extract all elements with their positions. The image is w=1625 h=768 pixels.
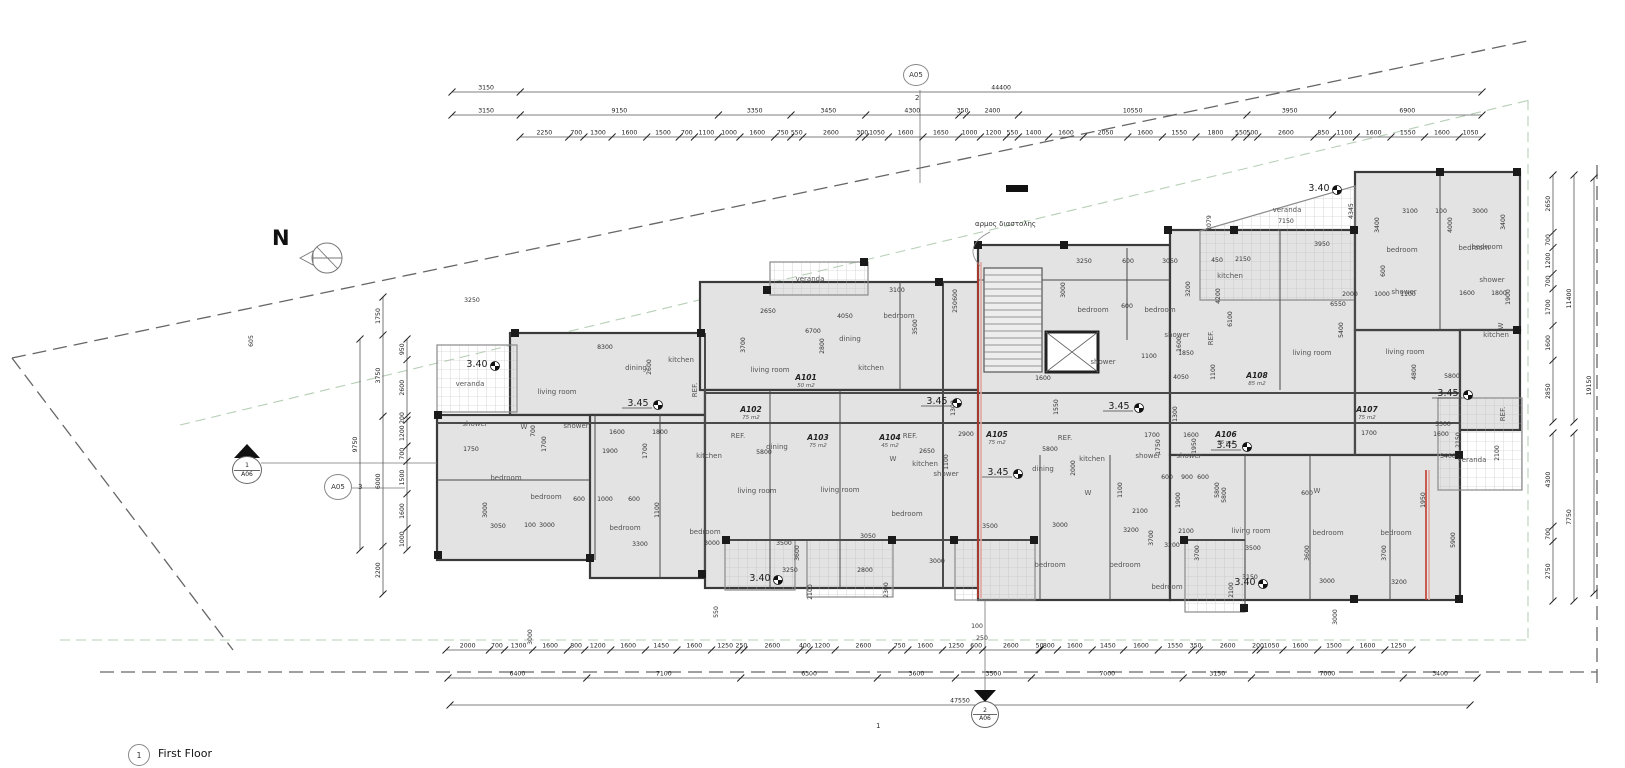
dimension-text: 1250 bbox=[948, 643, 964, 650]
dimension-text: 4800 bbox=[1411, 364, 1418, 380]
dimension-text: 3450 bbox=[820, 108, 836, 115]
column bbox=[1513, 326, 1521, 334]
level-label: 3.45 bbox=[627, 398, 648, 409]
apartment-area: 50 m2 bbox=[797, 383, 815, 389]
room-label: bedroom bbox=[1109, 561, 1140, 569]
section-marker-label: A06 bbox=[234, 471, 260, 479]
level-label: 3.45 bbox=[1108, 401, 1129, 412]
view-number-bubble: 1 bbox=[128, 744, 150, 766]
dimension-text: 19150 bbox=[1586, 376, 1593, 396]
dimension-text: 1700 bbox=[642, 443, 649, 459]
room-label: veranda bbox=[1273, 206, 1302, 214]
dimension-text: 1600 bbox=[1433, 431, 1449, 438]
dimension-text: 1900 bbox=[1175, 492, 1182, 508]
dimension-text: 1000 bbox=[962, 130, 978, 137]
dimension-text: 4300 bbox=[1545, 472, 1552, 488]
apartment-id: A105 bbox=[985, 430, 1007, 439]
dimension-text: 3200 bbox=[1391, 579, 1407, 586]
stairs bbox=[984, 268, 1042, 372]
room-label: REF. bbox=[903, 432, 917, 440]
room-label: bedroom bbox=[1034, 561, 1065, 569]
site-boundary-line bbox=[12, 358, 233, 650]
dimension-text: 600 bbox=[970, 643, 982, 650]
dimension-text: 1600 bbox=[898, 130, 914, 137]
dimension-text: 2100 bbox=[1132, 508, 1148, 515]
dimension-text: 2000 bbox=[460, 643, 476, 650]
dimension-text: 8300 bbox=[597, 344, 613, 351]
dimension-text: 3400 bbox=[1374, 217, 1381, 233]
dimension-text: 2600 bbox=[823, 130, 839, 137]
room-label: living room bbox=[1385, 348, 1424, 356]
dimension-text: 3700 bbox=[1148, 530, 1155, 546]
dimension-text: 1600 bbox=[1459, 290, 1475, 297]
room-label: REF. bbox=[691, 383, 699, 397]
dimension-text: 1600 bbox=[1058, 130, 1074, 137]
level-label: 3.40 bbox=[1234, 577, 1255, 588]
room-label: shower bbox=[462, 420, 487, 428]
dimension-text: 100 bbox=[524, 522, 536, 529]
room-label: W bbox=[890, 455, 897, 463]
level-label: 3.40 bbox=[749, 573, 770, 584]
dimension-text: 1000 bbox=[399, 531, 406, 547]
column bbox=[1350, 226, 1358, 234]
dimension-text: 700 bbox=[1545, 234, 1552, 246]
room-label: W bbox=[1085, 489, 1092, 497]
dimension-text: 2600 bbox=[856, 643, 872, 650]
column bbox=[1436, 168, 1444, 176]
apartment-area: 75 m2 bbox=[742, 415, 760, 421]
dimension-text: 1400 bbox=[1026, 130, 1042, 137]
column bbox=[434, 411, 442, 419]
dimension-text: 4200 bbox=[1215, 288, 1222, 304]
room-label: REF. bbox=[731, 432, 745, 440]
column bbox=[586, 554, 594, 562]
dimension-text: 3000 bbox=[539, 522, 555, 529]
section-marker-a05-left: A05 bbox=[324, 474, 352, 500]
room-label: bedroom bbox=[1380, 529, 1411, 537]
dimension-text: 1700 bbox=[1144, 432, 1160, 439]
dimension-text: 1600 bbox=[749, 130, 765, 137]
dimension-text: 3950 bbox=[1282, 108, 1298, 115]
dimension-text: 2600 bbox=[1220, 643, 1236, 650]
dimension-text: 1900 bbox=[602, 448, 618, 455]
column bbox=[1164, 226, 1172, 234]
dimension-text: 700 bbox=[681, 130, 693, 137]
dimension-text: 600 bbox=[1197, 474, 1209, 481]
dimension-text: 2600 bbox=[1278, 130, 1294, 137]
dimension-text: 3050 bbox=[1162, 258, 1178, 265]
room-label: bedroom bbox=[1077, 306, 1108, 314]
column bbox=[698, 570, 706, 578]
dimension-text: 2600 bbox=[646, 359, 653, 375]
dimension-text: 500 bbox=[1246, 130, 1258, 137]
dimension-text: 1500 bbox=[399, 470, 406, 486]
dimension-text: 600 bbox=[628, 496, 640, 503]
veranda-area bbox=[437, 345, 517, 412]
section-marker-a06-left: 1 A06 bbox=[232, 456, 262, 484]
column bbox=[1240, 604, 1248, 612]
building-block bbox=[1355, 172, 1520, 330]
dimension-text: 700 bbox=[570, 130, 582, 137]
dimension-text: 400 bbox=[799, 643, 811, 650]
veranda-area bbox=[955, 540, 1035, 600]
dimension-text: 3250 bbox=[1076, 258, 1092, 265]
dimension-text: 550 bbox=[1006, 130, 1018, 137]
dimension-text: 3000 bbox=[527, 629, 534, 645]
section-marker-a05-left-num: 3 bbox=[358, 483, 362, 491]
column bbox=[974, 241, 982, 249]
dimension-text: 2800 bbox=[857, 567, 873, 574]
dimension-text: 3150 bbox=[478, 85, 494, 92]
dimension-text: 6900 bbox=[1399, 108, 1415, 115]
floor-plan-drawing: 3150444003150915033503450430035024001055… bbox=[0, 0, 1625, 768]
dimension-text: 3700 bbox=[740, 337, 747, 353]
veranda-area bbox=[807, 540, 893, 597]
dimension-text: 6700 bbox=[805, 328, 821, 335]
dimension-text: 7100 bbox=[656, 671, 672, 678]
dimension-text: 3300 bbox=[1435, 421, 1451, 428]
room-label: kitchen bbox=[1483, 331, 1509, 339]
level-marker-icon bbox=[1333, 186, 1338, 191]
dimension-text: 1100 bbox=[1210, 364, 1217, 380]
dimension-text: 7000 bbox=[1099, 671, 1115, 678]
dimension-text: 900 bbox=[1181, 474, 1193, 481]
dimension-text: 1100 bbox=[698, 130, 714, 137]
dimension-text: 3250 bbox=[464, 297, 480, 304]
apartment-id: A102 bbox=[739, 405, 761, 414]
dimension-text: 2000 bbox=[1342, 291, 1358, 298]
dimension-text: 2650 bbox=[760, 308, 776, 315]
dimension-text: 1100 bbox=[654, 502, 661, 518]
room-label: kitchen bbox=[912, 460, 938, 468]
apartment-id: A108 bbox=[1245, 371, 1267, 380]
dimension-text: 7000 bbox=[1319, 671, 1335, 678]
apartment-id: A106 bbox=[1214, 430, 1236, 439]
dimension-text: 1600 bbox=[1366, 130, 1382, 137]
dimension-text: 700 bbox=[1545, 528, 1552, 540]
dimension-text: 1650 bbox=[933, 130, 949, 137]
dimension-text: 2100 bbox=[807, 584, 814, 600]
dimension-text: 750 bbox=[777, 130, 789, 137]
dimension-text: 200 bbox=[1252, 643, 1264, 650]
dimension-text: 3750 bbox=[375, 368, 382, 384]
dimension-text: 6000 bbox=[375, 473, 382, 489]
room-label: kitchen bbox=[858, 364, 884, 372]
dimension-text: 700 bbox=[1545, 275, 1552, 287]
dimension-text: 2650 bbox=[1545, 196, 1552, 212]
column bbox=[1030, 536, 1038, 544]
column bbox=[722, 536, 730, 544]
dimension-text: 4345 bbox=[1348, 203, 1355, 219]
dimension-text: 1200 bbox=[1545, 253, 1552, 269]
dimension-text: 1550 bbox=[1167, 643, 1183, 650]
dimension-text: 550 bbox=[791, 130, 803, 137]
dimension-text: 2250 bbox=[537, 130, 553, 137]
dimension-text: 1600 bbox=[686, 643, 702, 650]
room-label: W bbox=[1497, 322, 1505, 329]
dimension-text: 10550 bbox=[1123, 108, 1143, 115]
dimension-text: 1550 bbox=[1171, 130, 1187, 137]
section-marker-a06-bottom: 2 A06 bbox=[971, 701, 999, 728]
dimension-text: 1300 bbox=[511, 643, 527, 650]
apartment-area: 75 m2 bbox=[1358, 415, 1376, 421]
section-marker-label: A06 bbox=[973, 715, 997, 723]
dimension-text: 1100 bbox=[1337, 130, 1353, 137]
room-label: bedroom bbox=[891, 510, 922, 518]
dimension-text: 3950 bbox=[1314, 241, 1330, 248]
section-marker-a05-top-num: 2 bbox=[915, 94, 919, 102]
dimension-text: 2400 bbox=[985, 108, 1001, 115]
section-marker-label: A05 bbox=[909, 71, 923, 79]
room-label: bedroom bbox=[883, 312, 914, 320]
dimension-text: 1450 bbox=[1100, 643, 1116, 650]
dimension-text: 3250 bbox=[782, 567, 798, 574]
level-label: 3.40 bbox=[1308, 183, 1329, 194]
view-number: 1 bbox=[136, 751, 141, 760]
room-label: shower bbox=[1090, 358, 1115, 366]
dimension-text: 11400 bbox=[1566, 289, 1573, 309]
apartment-id: A103 bbox=[806, 433, 828, 442]
dimension-text: 1800 bbox=[1208, 130, 1224, 137]
dimension-text: 2100 bbox=[1494, 445, 1501, 461]
dimension-text: 2600 bbox=[399, 380, 406, 396]
north-compass-icon bbox=[300, 251, 313, 265]
dimension-text: 1600 bbox=[1035, 375, 1051, 382]
dimension-text: 1750 bbox=[375, 308, 382, 324]
dimension-text: 2600 bbox=[764, 643, 780, 650]
section-marker-number: 2 bbox=[973, 707, 997, 716]
section-marker-a05-top: A05 bbox=[903, 64, 929, 86]
room-label: kitchen bbox=[668, 356, 694, 364]
dimension-text: 300 bbox=[856, 130, 868, 137]
level-label: 3.40 bbox=[466, 359, 487, 370]
dimension-text: 47550 bbox=[950, 698, 970, 705]
dimension-text: 1050 bbox=[1264, 643, 1280, 650]
dimension-text: 2300 bbox=[883, 582, 890, 598]
room-label: shower bbox=[1176, 452, 1201, 460]
column bbox=[1513, 168, 1521, 176]
level-label: 3.45 bbox=[1437, 388, 1458, 399]
dimension-text: 6400 bbox=[510, 671, 526, 678]
dimension-text: 1200 bbox=[814, 643, 830, 650]
dimension-text: 1300 bbox=[1172, 406, 1179, 422]
room-label: W bbox=[521, 423, 528, 431]
apartment-id: A101 bbox=[794, 373, 816, 382]
dimension-text: 2800 bbox=[819, 338, 826, 354]
room-label: bedroom bbox=[609, 524, 640, 532]
north-label: N bbox=[272, 226, 290, 250]
dimension-text: 100 bbox=[971, 623, 983, 630]
dimension-text: 2900 bbox=[958, 431, 974, 438]
floor-plan-sheet: 3150444003150915033503450430035024001055… bbox=[0, 0, 1625, 768]
column bbox=[1350, 595, 1358, 603]
dimension-text: 3200 bbox=[1164, 542, 1180, 549]
dimension-text: 1600 bbox=[917, 643, 933, 650]
room-label: bedroom bbox=[1471, 243, 1502, 251]
dimension-text: 9150 bbox=[611, 108, 627, 115]
apartment-id: A107 bbox=[1355, 405, 1378, 414]
column bbox=[434, 551, 442, 559]
dimension-text: 1600 bbox=[399, 503, 406, 519]
dimension-text: 1250 bbox=[717, 643, 733, 650]
dimension-text: 1700 bbox=[1545, 299, 1552, 315]
dimension-text: 9750 bbox=[352, 437, 359, 453]
dimension-text: 44400 bbox=[991, 85, 1011, 92]
dimension-text: 700 bbox=[491, 643, 503, 650]
dimension-text: 6550 bbox=[1330, 301, 1346, 308]
dimension-text: 1450 bbox=[653, 643, 669, 650]
dimension-text: 3000 bbox=[929, 558, 945, 565]
level-label: 3.45 bbox=[1216, 440, 1237, 451]
view-title: First Floor bbox=[158, 747, 212, 760]
dimension-text: 1750 bbox=[463, 446, 479, 453]
dimension-text: 3200 bbox=[1185, 281, 1192, 297]
dimension-text: 1700 bbox=[1361, 430, 1377, 437]
column bbox=[1060, 241, 1068, 249]
dimension-text: 700 bbox=[399, 448, 406, 460]
expansion-joint-annotation: αρμος διαστολης bbox=[975, 220, 1036, 228]
room-label: W bbox=[1314, 487, 1321, 495]
dimension-text: 3000 bbox=[1052, 522, 1068, 529]
dimension-text: 4050 bbox=[1173, 374, 1189, 381]
room-label: kitchen bbox=[1079, 455, 1105, 463]
room-label: shower bbox=[563, 422, 588, 430]
dimension-text: 3400 bbox=[1432, 671, 1448, 678]
dimension-text: 3400 bbox=[1440, 453, 1456, 460]
dimension-text: 605 bbox=[248, 335, 255, 347]
bottom-view-number: 1 bbox=[876, 722, 880, 730]
column bbox=[888, 536, 896, 544]
section-marker-number: 1 bbox=[234, 462, 260, 471]
dimension-text: 3400 bbox=[1500, 214, 1507, 230]
dimension-text: 2000 bbox=[1070, 460, 1077, 476]
dimension-text: 3150 bbox=[1209, 671, 1225, 678]
dimension-text: 3500 bbox=[982, 523, 998, 530]
dimension-text: 5400 bbox=[1338, 322, 1345, 338]
dimension-text: 550 bbox=[1235, 130, 1247, 137]
dimension-text: 5900 bbox=[1450, 532, 1457, 548]
column bbox=[1180, 536, 1188, 544]
dimension-text: 800 bbox=[1043, 643, 1055, 650]
dimension-text: 1600 bbox=[609, 429, 625, 436]
column bbox=[935, 278, 943, 286]
dimension-text: 5800 bbox=[1221, 487, 1228, 503]
room-label: bedroom bbox=[1386, 246, 1417, 254]
dimension-text: 3600 bbox=[909, 671, 925, 678]
room-label: living room bbox=[537, 388, 576, 396]
dimension-text: 1200 bbox=[590, 643, 606, 650]
dimension-text: 3500 bbox=[986, 671, 1002, 678]
room-label: shower bbox=[1135, 452, 1160, 460]
veranda-area bbox=[1200, 186, 1355, 300]
veranda-area bbox=[1438, 398, 1522, 490]
dimension-text: 1700 bbox=[541, 436, 548, 452]
dimension-text: 1100 bbox=[943, 454, 950, 470]
dimension-text: 1050 bbox=[869, 130, 885, 137]
dimension-text: 1500 bbox=[1326, 643, 1342, 650]
apartment-area: 75 m2 bbox=[809, 443, 827, 449]
dimension-text: 1000 bbox=[1374, 291, 1390, 298]
dimension-text: 1300 bbox=[590, 130, 606, 137]
dimension-text: 1600 bbox=[1133, 643, 1149, 650]
dimension-text: 1050 bbox=[1463, 130, 1479, 137]
room-label: veranda bbox=[796, 275, 825, 283]
dimension-text: 950 bbox=[399, 343, 406, 355]
dimension-text: 6100 bbox=[1227, 311, 1234, 327]
room-label: living room bbox=[737, 487, 776, 495]
dimension-text: 1600 bbox=[542, 643, 558, 650]
dimension-text: 2079 bbox=[1206, 215, 1213, 231]
room-label: bedroom bbox=[1144, 306, 1175, 314]
room-label: living room bbox=[750, 366, 789, 374]
dimension-text: 3000 bbox=[1060, 282, 1067, 298]
dimension-text: 3000 bbox=[482, 502, 489, 518]
dimension-text: 3500 bbox=[776, 540, 792, 547]
dimension-text: 3600 bbox=[794, 545, 801, 561]
dimension-text: 1000 bbox=[721, 130, 737, 137]
level-label: 3.45 bbox=[987, 467, 1008, 478]
dimension-text: 600 bbox=[573, 496, 585, 503]
dimension-text: 1000 bbox=[597, 496, 613, 503]
dimension-text: 7150 bbox=[1278, 218, 1294, 225]
dimension-text: 2750 bbox=[1545, 563, 1552, 579]
room-label: REF. bbox=[1499, 407, 1507, 421]
dimension-text: 600 bbox=[1161, 474, 1173, 481]
room-label: living room bbox=[1231, 527, 1270, 535]
room-label: shower bbox=[1164, 331, 1189, 339]
room-label: bedroom bbox=[1151, 583, 1182, 591]
dimension-text: 2650 bbox=[919, 448, 935, 455]
dimension-text: 3200 bbox=[1123, 527, 1139, 534]
dimension-text: 600 bbox=[1121, 303, 1133, 310]
dimension-text: 3100 bbox=[889, 287, 905, 294]
dimension-text: 1600 bbox=[620, 643, 636, 650]
column bbox=[763, 286, 771, 294]
dimension-text: 1100 bbox=[1117, 482, 1124, 498]
room-label: shower bbox=[1391, 288, 1416, 296]
room-label: bedroom bbox=[490, 474, 521, 482]
dimension-text: 3000 bbox=[1332, 609, 1339, 625]
dimension-text: 5800 bbox=[1214, 482, 1221, 498]
dimension-text: 1200 bbox=[986, 130, 1002, 137]
room-label: living room bbox=[820, 486, 859, 494]
dimension-text: 200 bbox=[399, 412, 406, 424]
dimension-text: 350 bbox=[1190, 643, 1202, 650]
level-label: 3.45 bbox=[926, 396, 947, 407]
dimension-text: 1950 bbox=[1420, 492, 1427, 508]
dimension-text: 1900 bbox=[1505, 289, 1512, 305]
room-label: dining bbox=[1032, 465, 1054, 473]
apartment-id: A104 bbox=[878, 433, 900, 442]
dimension-text: 1600 bbox=[1292, 643, 1308, 650]
dimension-text: 250 bbox=[736, 643, 748, 650]
dimension-text: 3050 bbox=[860, 533, 876, 540]
dimension-text: 3500 bbox=[912, 319, 919, 335]
dimension-text: 3350 bbox=[747, 108, 763, 115]
room-label: REF. bbox=[1207, 331, 1215, 345]
dimension-text: 800 bbox=[570, 643, 582, 650]
dimension-text: 1250 bbox=[1391, 643, 1407, 650]
dimension-text: 4050 bbox=[837, 313, 853, 320]
dimension-text: 3300 bbox=[632, 541, 648, 548]
apartment-area: 45 m2 bbox=[881, 443, 899, 449]
dimension-text: 3700 bbox=[1194, 545, 1201, 561]
room-label: bedroom bbox=[530, 493, 561, 501]
dimension-text: 3700 bbox=[1381, 545, 1388, 561]
room-label: dining bbox=[625, 364, 647, 372]
dimension-text: 3150 bbox=[478, 108, 494, 115]
dimension-text: 4000 bbox=[1447, 217, 1454, 233]
